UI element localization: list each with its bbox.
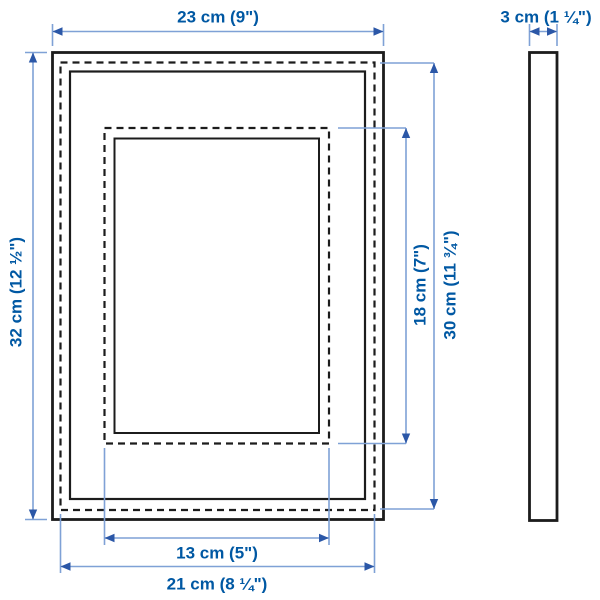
arrowhead-left-icon: [105, 534, 115, 542]
arrowhead-left-icon: [53, 27, 63, 35]
dimension-outer-height: 32 cm (12 ½"): [7, 53, 48, 520]
arrowhead-left-icon: [61, 562, 71, 570]
inner-picture-width-label: 21 cm (8 ¼"): [167, 575, 268, 594]
arrowhead-down-icon: [402, 434, 410, 444]
mat-opening-height-label: 18 cm (7"): [411, 244, 430, 326]
arrowhead-up-icon: [29, 53, 37, 63]
dimension-depth: 3 cm (1 ¼"): [500, 8, 591, 47]
frame-outer-edge: [53, 53, 384, 520]
frame-side-profile: [530, 53, 558, 521]
arrowhead-down-icon: [29, 510, 37, 520]
inner-picture-height-label: 30 cm (11 ¾"): [441, 230, 460, 339]
arrowhead-right-icon: [319, 534, 329, 542]
arrowhead-up-icon: [402, 128, 410, 138]
mat-opening-dashed-outline: [105, 128, 330, 444]
dimension-mat-opening-width: 13 cm (5"): [105, 448, 330, 563]
outer-height-label: 32 cm (12 ½"): [7, 237, 26, 347]
arrowhead-right-icon: [547, 27, 557, 35]
outer-width-label: 23 cm (9"): [177, 8, 259, 27]
mat-opening-width-label: 13 cm (5"): [176, 544, 258, 563]
depth-label: 3 cm (1 ¼"): [500, 8, 591, 27]
arrowhead-right-icon: [365, 562, 375, 570]
frame-dimension-diagram: 23 cm (9") 3 cm (1 ¼") 32 cm (12 ½") 18 …: [0, 0, 600, 600]
picture-opening-edge: [115, 139, 320, 434]
arrowhead-down-icon: [430, 499, 438, 509]
arrowhead-right-icon: [374, 27, 384, 35]
frame-front-view: [53, 53, 384, 520]
dimension-outer-width: 23 cm (9"): [53, 8, 384, 47]
arrowhead-up-icon: [430, 63, 438, 73]
side-profile-edge: [530, 53, 558, 521]
arrowhead-left-icon: [530, 27, 540, 35]
